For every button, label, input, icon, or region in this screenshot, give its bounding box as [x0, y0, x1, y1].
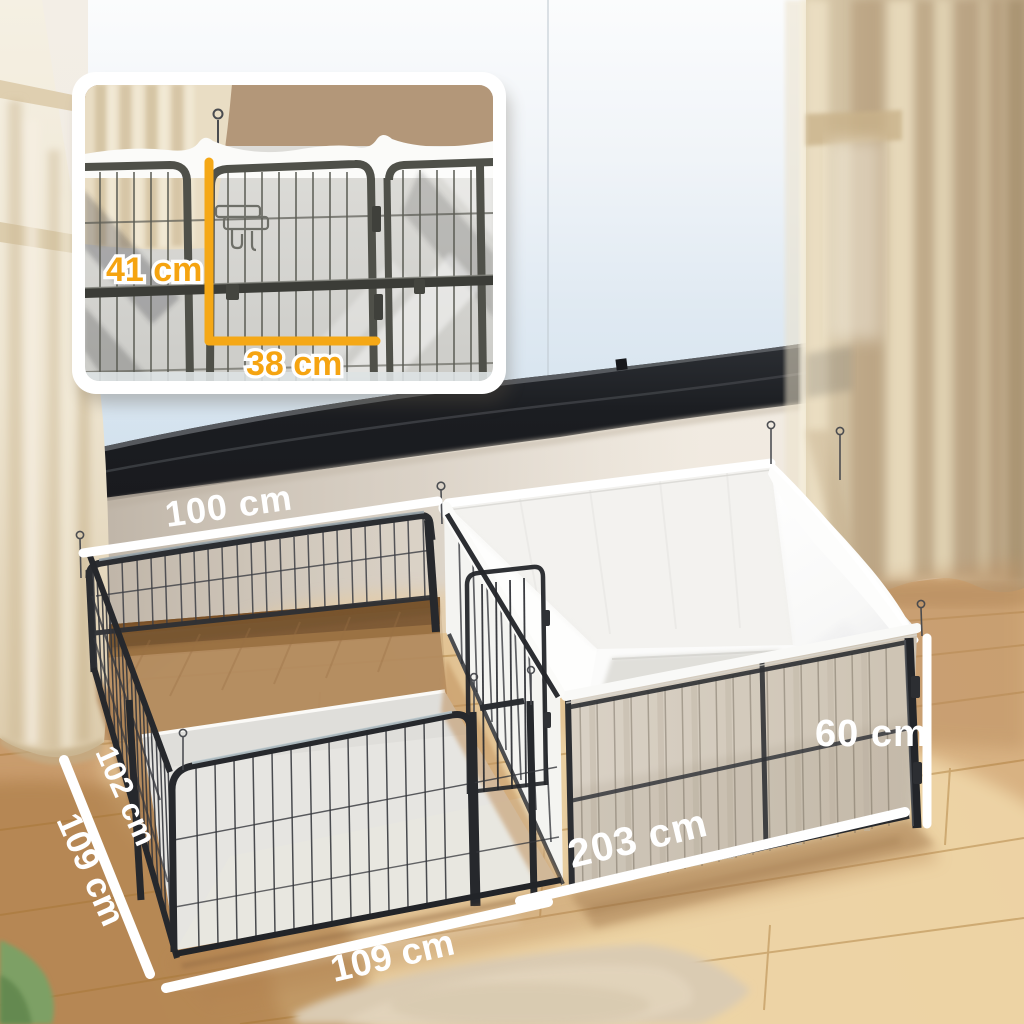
svg-text:60 cm: 60 cm: [815, 713, 928, 755]
svg-text:38 cm: 38 cm: [246, 345, 342, 383]
svg-text:41 cm: 41 cm: [106, 251, 202, 289]
